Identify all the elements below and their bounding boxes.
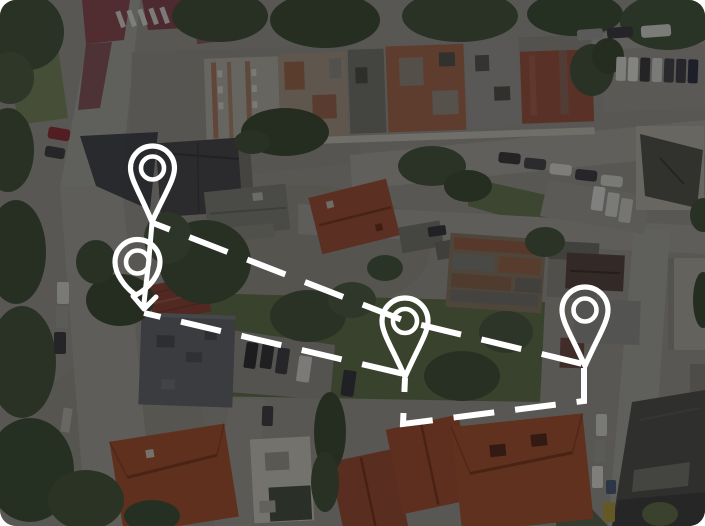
map-pin-marker-1-inner-ring bbox=[141, 157, 164, 180]
map-pin-marker-2-outline bbox=[115, 240, 160, 296]
dashed-route-middle bbox=[144, 313, 404, 374]
map-pin-marker-3[interactable] bbox=[382, 298, 428, 377]
map-pin-marker-4-inner-ring bbox=[574, 299, 597, 322]
screenshot-stage bbox=[0, 0, 705, 526]
map-pin-marker-3-inner-ring bbox=[393, 309, 417, 333]
move-arrow-shaft bbox=[144, 223, 152, 303]
dashed-route-top bbox=[153, 223, 583, 364]
map-canvas[interactable] bbox=[0, 0, 705, 526]
map-pin-marker-1[interactable] bbox=[131, 146, 175, 222]
map-pin-marker-2[interactable] bbox=[115, 240, 160, 296]
map-pin-marker-4[interactable] bbox=[562, 287, 608, 366]
route-annotation-layer bbox=[0, 0, 705, 526]
dashed-route-bottom bbox=[403, 368, 584, 424]
